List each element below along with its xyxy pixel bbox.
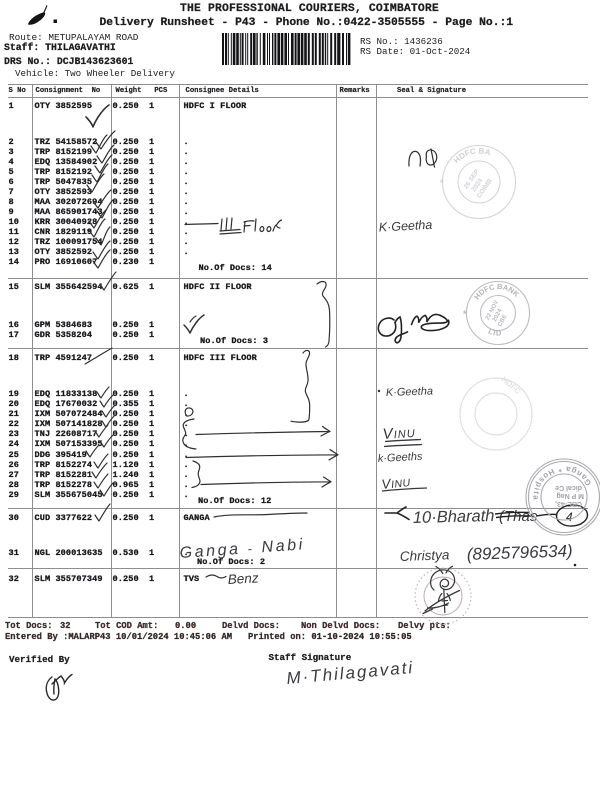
svg-text:*: * xyxy=(440,178,444,188)
svg-text:Christya: Christya xyxy=(400,547,450,564)
svg-text:Ganga - Nabi: Ganga - Nabi xyxy=(179,536,305,562)
svg-text:Benz: Benz xyxy=(227,570,259,587)
svg-text:HDFC BANK: HDFC BANK xyxy=(472,282,521,301)
svg-text:dical Ce: dical Ce xyxy=(555,484,582,491)
svg-text:K·Geetha: K·Geetha xyxy=(386,385,433,399)
svg-text:(8925796534): (8925796534) xyxy=(466,541,572,564)
svg-text:M·Thilagavati: M·Thilagavati xyxy=(286,658,415,688)
svg-text:4: 4 xyxy=(566,510,573,524)
svg-text:HDFC: HDFC xyxy=(500,375,523,396)
svg-text:k·Geeths: k·Geeths xyxy=(378,451,424,465)
svg-text:M P Nag: M P Nag xyxy=(557,492,585,499)
svg-text:CBE-43,: CBE-43, xyxy=(555,500,582,507)
svg-text:10·Bharath: 10·Bharath xyxy=(413,507,495,527)
svg-text:*: * xyxy=(463,309,467,319)
svg-text:K·Geetha: K·Geetha xyxy=(378,218,432,235)
